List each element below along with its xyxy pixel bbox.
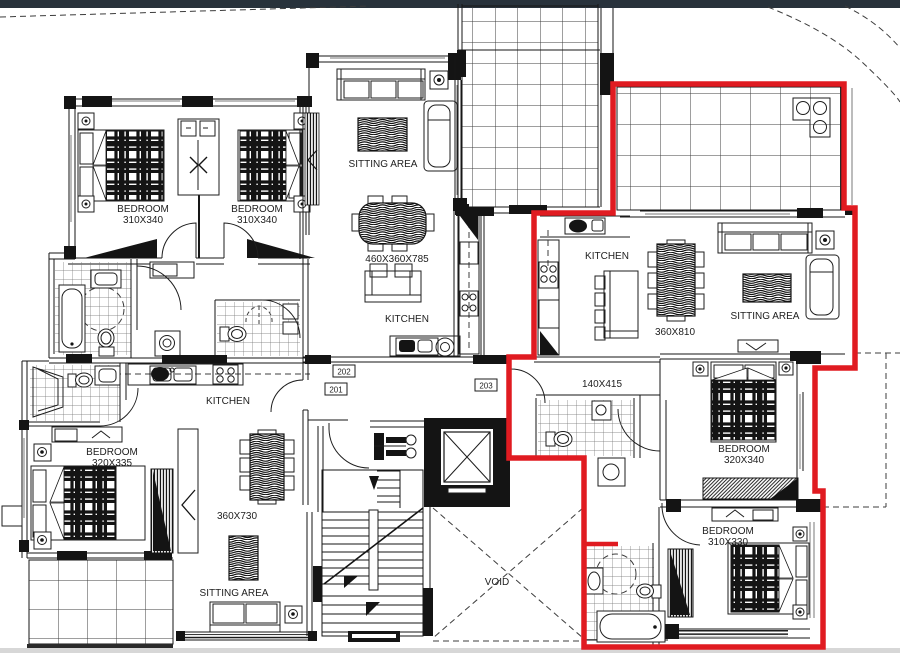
svg-text:BEDROOM: BEDROOM: [117, 204, 169, 215]
svg-text:320X335: 320X335: [92, 458, 132, 469]
svg-text:VOID: VOID: [485, 577, 509, 588]
svg-text:320X340: 320X340: [724, 455, 764, 466]
svg-text:KITCHEN: KITCHEN: [385, 314, 429, 325]
svg-text:SITTING AREA: SITTING AREA: [349, 159, 418, 170]
svg-text:BEDROOM: BEDROOM: [86, 447, 138, 458]
svg-text:310X340: 310X340: [123, 215, 163, 226]
svg-text:BEDROOM: BEDROOM: [718, 444, 770, 455]
svg-text:202: 202: [337, 368, 351, 377]
svg-text:SITTING AREA: SITTING AREA: [731, 311, 800, 322]
svg-text:BEDROOM: BEDROOM: [231, 204, 283, 215]
svg-text:310X330: 310X330: [708, 537, 748, 548]
svg-text:SITTING AREA: SITTING AREA: [200, 588, 269, 599]
svg-text:203: 203: [479, 382, 493, 391]
svg-text:310X340: 310X340: [237, 215, 277, 226]
svg-text:KITCHEN: KITCHEN: [585, 251, 629, 262]
svg-text:460X360X785: 460X360X785: [365, 254, 429, 265]
svg-text:201: 201: [329, 386, 343, 395]
svg-text:BEDROOM: BEDROOM: [702, 526, 754, 537]
svg-text:360X730: 360X730: [217, 511, 257, 522]
svg-text:140X415: 140X415: [582, 379, 622, 390]
svg-text:KITCHEN: KITCHEN: [206, 396, 250, 407]
svg-text:360X810: 360X810: [655, 327, 695, 338]
